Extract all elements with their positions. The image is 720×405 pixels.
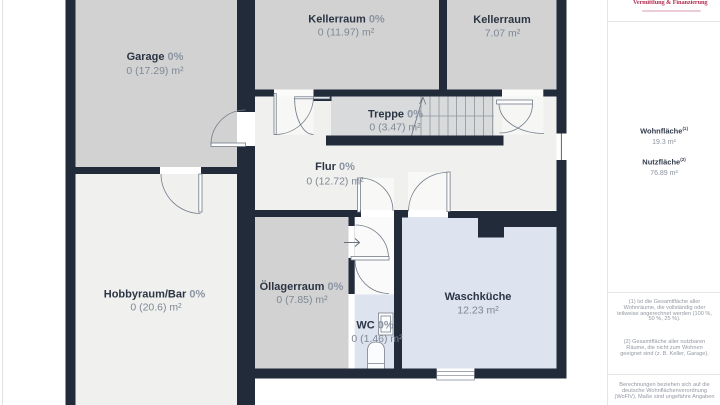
svg-text:Kellerraum: Kellerraum bbox=[473, 14, 531, 26]
svg-text:0 (12.72) m²: 0 (12.72) m² bbox=[306, 176, 364, 188]
svg-text:Kellerraum 0%: Kellerraum 0% bbox=[308, 14, 385, 26]
svg-text:Flur 0%: Flur 0% bbox=[315, 161, 355, 173]
svg-text:0 (17.29) m²: 0 (17.29) m² bbox=[126, 65, 184, 77]
svg-text:Treppe 0%: Treppe 0% bbox=[368, 109, 423, 121]
svg-text:Garage 0%: Garage 0% bbox=[127, 51, 184, 63]
svg-text:0 (11.97) m²: 0 (11.97) m² bbox=[318, 27, 375, 39]
svg-text:0 (20.6) m²: 0 (20.6) m² bbox=[130, 302, 182, 314]
svg-text:0 (3.47) m²: 0 (3.47) m² bbox=[369, 122, 421, 134]
svg-text:0 (1.46) m²: 0 (1.46) m² bbox=[351, 333, 403, 345]
svg-text:Hobbyraum/Bar 0%: Hobbyraum/Bar 0% bbox=[104, 289, 206, 301]
svg-text:WC 0%: WC 0% bbox=[356, 320, 394, 332]
svg-text:Öllagerraum 0%: Öllagerraum 0% bbox=[260, 280, 344, 293]
svg-text:12.23 m²: 12.23 m² bbox=[457, 305, 499, 317]
svg-text:7.07 m²: 7.07 m² bbox=[485, 28, 521, 40]
svg-text:0 (7.85) m²: 0 (7.85) m² bbox=[276, 294, 328, 306]
svg-text:Waschküche: Waschküche bbox=[445, 291, 512, 303]
